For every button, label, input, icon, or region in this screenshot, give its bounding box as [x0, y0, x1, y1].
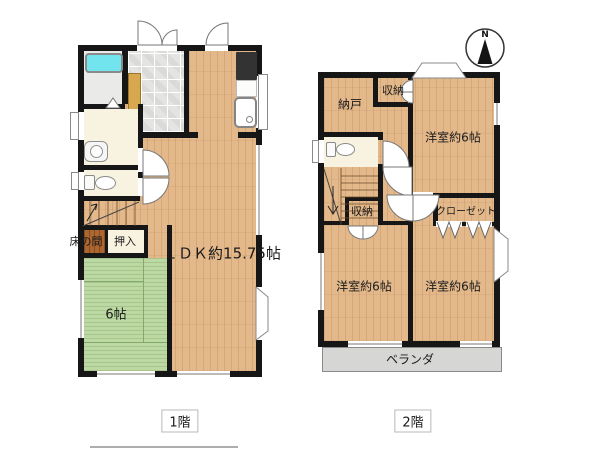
artifact-line	[90, 446, 238, 448]
kitchen-door-arc	[206, 23, 228, 45]
entrance-door-arc	[162, 30, 177, 45]
bay-window	[256, 287, 268, 340]
bay-window	[412, 63, 466, 78]
floor2-caption: 2階	[394, 410, 431, 433]
room-door-flap	[363, 226, 378, 239]
room-label-ldk: ＬＤＫ約15.75帖	[163, 243, 281, 264]
compass-n-label: N	[481, 30, 489, 40]
north-compass-icon: N	[466, 29, 504, 67]
room-label-bedroom-ne: 洋室約6帖	[425, 129, 481, 146]
hall-door-arc	[143, 150, 169, 176]
room-label-closet: クローゼット	[436, 203, 496, 218]
room-label-storage-top: 収納	[382, 82, 404, 98]
room-door-flap	[348, 226, 363, 239]
f1-stairs-arrow	[87, 204, 97, 221]
plan-linework: N	[0, 0, 600, 450]
room-label-veranda: ベランダ	[386, 351, 434, 368]
room-label-storage-mid: 収納	[351, 203, 373, 219]
toilet-door-arc	[383, 141, 409, 167]
room-label-oshiire: 押入	[114, 233, 136, 249]
entrance-door-arc	[138, 21, 162, 45]
room-label-tokonoma: 床の間	[70, 233, 103, 249]
bay-window	[494, 228, 508, 282]
hall-door-arc	[143, 178, 169, 204]
room-label-tatami: 6帖	[105, 304, 126, 323]
hall-door-arc	[383, 167, 412, 196]
room-label-bedroom-se: 洋室約6帖	[425, 278, 481, 295]
room-label-bedroom-sw: 洋室約6帖	[336, 278, 392, 295]
hall-door-arc	[387, 195, 413, 221]
bathroom-door-mark	[106, 98, 120, 108]
floor1-caption: 1階	[161, 410, 198, 433]
room-label-nando: 納戸	[338, 96, 362, 113]
floorplan-canvas: N 床の間 押入 ＬＤＫ約15.75帖 6帖 納戸 収納 収納 クローゼット 洋…	[0, 0, 600, 450]
